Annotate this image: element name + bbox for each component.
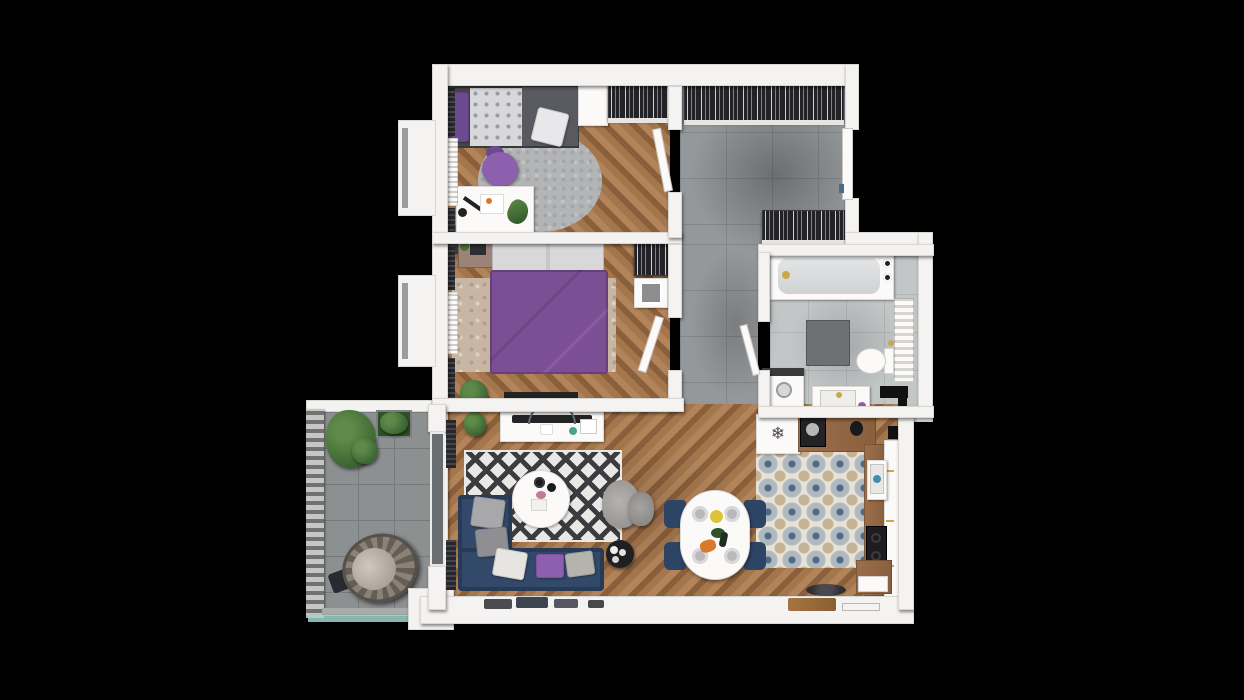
shower-mat <box>806 320 850 366</box>
coffee-table-bowl-1 <box>534 477 545 488</box>
towel-radiator <box>894 298 914 382</box>
yellow-dish <box>708 508 725 525</box>
entrance-door-handle <box>839 184 844 193</box>
sill-mat-1 <box>484 599 512 609</box>
hall-wardrobe-shelf <box>684 120 844 125</box>
wall-balcony-b <box>428 566 446 610</box>
bedroom1-rack-shelf <box>608 118 670 123</box>
window-glass-master <box>402 283 408 359</box>
wall-balcony-a <box>428 404 446 432</box>
corner-cabinet-front <box>858 576 888 592</box>
toilet <box>856 348 886 374</box>
planter-box-plant <box>380 412 408 434</box>
vanity-gold-faucet <box>836 392 842 398</box>
wardrobe-cabinet <box>578 84 608 126</box>
hall-wardrobe-row <box>684 84 844 122</box>
wall-bedroom1-right-a <box>668 86 682 130</box>
window-glass-bedroom1 <box>402 128 408 208</box>
sink-blue-cup <box>873 475 881 483</box>
console-green-dot <box>569 427 577 435</box>
floor-kitchen <box>756 452 874 568</box>
bathtub-knob-2 <box>883 273 892 282</box>
coffee-table-book <box>531 499 547 511</box>
living-curtain-top <box>446 420 456 468</box>
floral-duvet <box>470 88 522 146</box>
sill-mat-2 <box>516 597 548 608</box>
coffee-table-bowl-2 <box>547 483 556 492</box>
place-setting-4 <box>724 548 740 564</box>
bathtub-basin <box>778 258 880 294</box>
coffee-table-flowers <box>536 491 546 499</box>
fridge-snowflake-icon: ❄ <box>756 414 800 454</box>
console-card <box>580 419 597 434</box>
ottoman <box>628 492 654 526</box>
washing-machine-door <box>776 382 792 398</box>
window-sill-plate <box>806 584 846 596</box>
side-table-candle-3 <box>612 556 619 563</box>
sofa-pillow-white <box>492 547 528 580</box>
sill-tray-outline <box>842 603 880 611</box>
floor-plan: ❄ <box>0 0 1244 700</box>
entry-wardrobe <box>762 210 846 242</box>
fridge: ❄ <box>756 414 800 454</box>
purple-duvet <box>490 270 608 374</box>
cabinet-handle-2 <box>886 520 894 522</box>
bathtub-gold-faucet <box>782 271 790 279</box>
balcony-glass-door <box>430 432 445 566</box>
place-setting-1 <box>692 506 708 522</box>
desk-papers <box>480 194 504 214</box>
sofa-pillow-purple <box>536 554 564 578</box>
place-setting-2 <box>724 506 740 522</box>
bathtub-knob-1 <box>883 259 892 268</box>
wall-master-right-a <box>668 244 682 318</box>
wall-bedroom-divider <box>432 232 682 244</box>
side-table-candle-2 <box>619 549 626 556</box>
wall-top <box>432 64 858 86</box>
wall-right-top-a <box>845 64 859 130</box>
desk-lamp <box>458 208 467 217</box>
purple-pouf <box>482 152 518 186</box>
desk-paper-doodle <box>486 198 492 204</box>
living-curtain-bottom <box>446 540 456 590</box>
bedroom1-radiator <box>447 138 458 206</box>
kettle <box>850 421 863 436</box>
wall-bathroom-top <box>758 244 934 256</box>
sofa-pillow-gray-1 <box>470 496 506 530</box>
sofa-pillow-gray-3 <box>564 550 595 578</box>
bedroom1-wardrobe-rack <box>608 84 670 120</box>
sill-wood-tray <box>788 598 836 611</box>
sill-mat-3 <box>554 599 578 608</box>
master-radiator <box>447 292 458 354</box>
balcony-railing <box>306 410 324 618</box>
large-plant-leaf <box>352 438 378 464</box>
wall-master-bottom-tv <box>432 398 684 412</box>
wall-bedroom1-right-b <box>668 192 682 238</box>
wall-right-bathroom <box>918 232 933 422</box>
side-table-candle-1 <box>610 546 618 554</box>
console-plant <box>464 412 486 436</box>
sill-mat-4 <box>588 600 604 608</box>
wall-bathroom-bottom <box>758 406 934 418</box>
wall-bathroom-left-a <box>758 252 770 322</box>
laptop <box>470 244 486 255</box>
coffee-machine-top <box>806 423 819 436</box>
wall-right-kitchen <box>898 415 914 610</box>
cabinet-handle-1 <box>886 470 894 472</box>
nightstand-tray <box>640 282 662 304</box>
cooktop-ring-1 <box>871 533 881 543</box>
console-remote <box>540 424 553 435</box>
bed-pillows <box>492 240 604 272</box>
